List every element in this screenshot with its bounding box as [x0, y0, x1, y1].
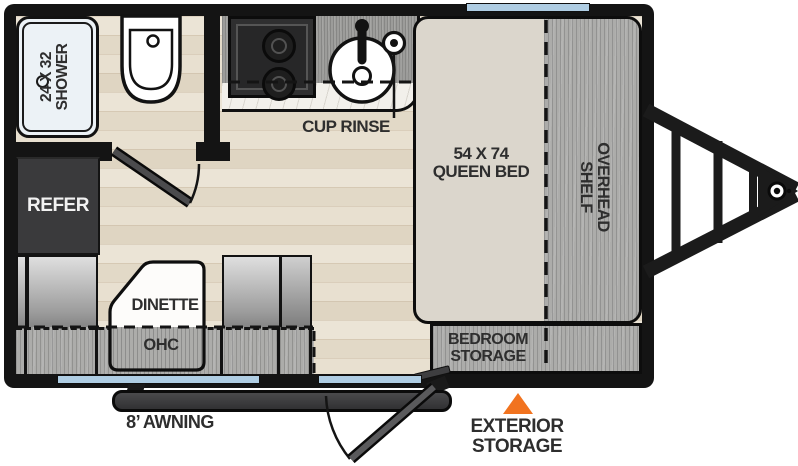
- ohc-label: OHC: [106, 337, 216, 354]
- cooktop-panel: [236, 24, 308, 90]
- trailer-tongue-hitch-icon: [646, 110, 798, 272]
- awning-icon: [112, 390, 452, 412]
- bathroom-wall: [204, 16, 220, 144]
- cabinet-divider: [95, 327, 98, 374]
- queen-bed-label: 54 X 74 QUEEN BED: [420, 145, 542, 181]
- dinette-label: DINETTE: [110, 297, 220, 314]
- cabinet-divider: [220, 327, 223, 374]
- burner-icon: [262, 67, 296, 101]
- hitch-coupler-icon: [769, 183, 785, 199]
- cup-rinse-label: CUP RINSE: [296, 118, 396, 136]
- cabinet-divider: [277, 327, 280, 374]
- cabinet-divider: [24, 327, 27, 374]
- exterior-storage-marker-icon: [503, 393, 533, 414]
- refer-label: REFER: [16, 196, 100, 216]
- entry-door-window-icon: [318, 375, 422, 384]
- overhead-shelf-label: OVERHEAD SHELF: [575, 127, 611, 247]
- burner-icon: [262, 29, 296, 63]
- exterior-storage-label: EXTERIOR STORAGE: [447, 417, 587, 457]
- cabinet-divider: [309, 327, 312, 374]
- window-icon: [466, 3, 590, 12]
- shower-label: 24 X 32 SHOWER: [39, 22, 75, 132]
- cooktop-icon: [228, 16, 316, 98]
- awning-label: 8’ AWNING: [95, 413, 245, 432]
- bathroom-wall-end: [196, 142, 230, 161]
- bedroom-storage-label: BEDROOM STORAGE: [432, 332, 544, 366]
- window-icon: [57, 375, 260, 384]
- floorplan-canvas: 24 X 32 SHOWER CUP RINSE 54 X 74 QUEEN B…: [0, 0, 798, 466]
